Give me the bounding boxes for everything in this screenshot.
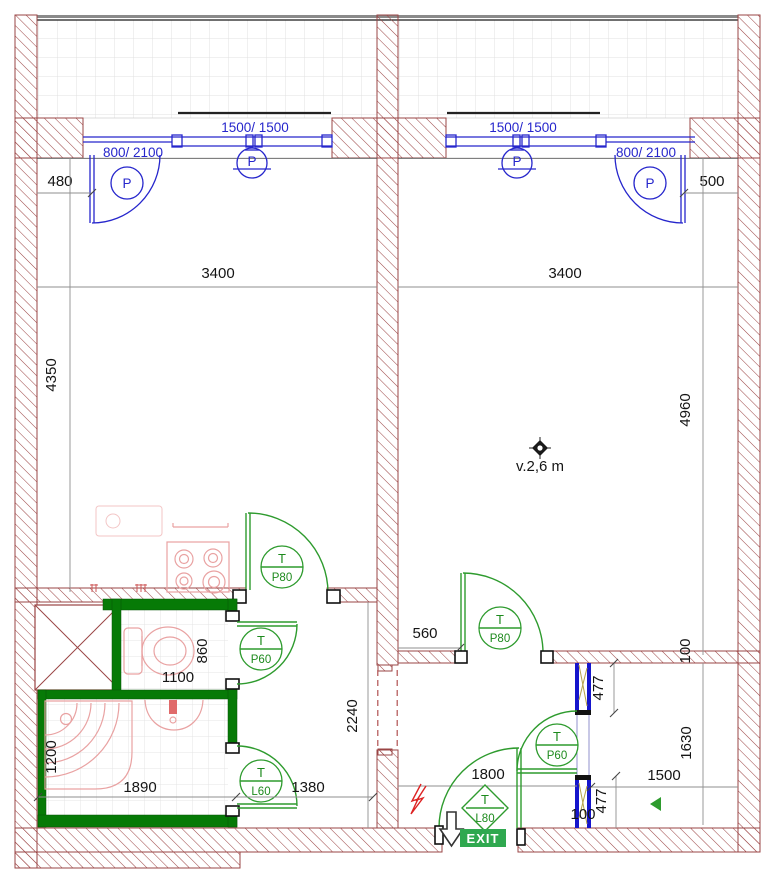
- kitchen-sink-drain: [106, 514, 120, 528]
- entrance-tag-letter: T: [481, 792, 489, 807]
- burner-2i: [209, 554, 218, 563]
- right-balcony: [398, 20, 738, 118]
- burner-3i: [180, 577, 188, 585]
- exit-direction-icon: [650, 797, 661, 811]
- dim-1380: 1380: [291, 779, 324, 796]
- kitchen-door-tag-letter: T: [278, 551, 286, 566]
- wc-door-jamb-top: [226, 611, 239, 621]
- burner-2: [204, 549, 222, 567]
- right-unit-openings: 1500/ 1500 800/ 2100 P P: [446, 113, 695, 223]
- kitchen-door-tag-code: P80: [272, 572, 292, 584]
- dim-480: 480: [47, 173, 72, 190]
- wc-door-tag-letter: T: [553, 729, 561, 744]
- left-window-tag: P: [247, 154, 256, 169]
- wardrobe-bottom-cap: [575, 775, 591, 780]
- opening-stub-top: [378, 665, 392, 671]
- bath-wall-right-b: [228, 687, 237, 745]
- wardrobe-top-cap: [575, 710, 591, 715]
- dim-4960: 4960: [677, 393, 694, 426]
- left-window-size-label: 1500/ 1500: [221, 120, 289, 135]
- bottom-wall-left-extra: [15, 852, 240, 868]
- dim-477-bottom: 477: [593, 788, 610, 813]
- balcony-divider-wall: [377, 15, 398, 118]
- bath-upper-tag-code: P60: [251, 654, 271, 666]
- dim-1500: 1500: [647, 767, 680, 784]
- dim-100-top: 100: [677, 638, 694, 663]
- left-door-size-label: 800/ 2100: [103, 145, 163, 160]
- right-door-tag: P: [645, 176, 654, 191]
- right-wall-pier: [690, 118, 760, 158]
- right-window-tag: P: [512, 154, 521, 169]
- shower-floor-tiles: [46, 699, 228, 815]
- dim-860: 860: [194, 638, 211, 663]
- dim-1890: 1890: [123, 779, 156, 796]
- dim-477-top: 477: [590, 675, 607, 700]
- height-mark-center: [537, 445, 542, 450]
- electric-bolt-icon: [411, 784, 426, 814]
- left-balcony: [37, 20, 377, 118]
- entrance-jamb-right: [517, 829, 525, 845]
- wardrobe-top-side-a: [575, 663, 579, 711]
- wc-door: T P60: [517, 711, 578, 773]
- bath-upper-tag-letter: T: [257, 633, 265, 648]
- kitchen-door-jamb-right: [327, 590, 340, 603]
- entrance-tag-code: L80: [475, 813, 494, 825]
- bath-wall-bottom: [38, 815, 237, 827]
- corridor-wall-lower: [377, 750, 398, 828]
- opening-stub-bottom: [378, 749, 392, 755]
- dim-2240: 2240: [344, 699, 361, 732]
- bath-wall-divider: [112, 599, 121, 693]
- hall-door: T P80 560: [398, 573, 553, 663]
- bath-lower-tag-letter: T: [257, 765, 265, 780]
- ceiling-note: v.2,6 m: [516, 458, 564, 475]
- right-balcony-tiles: [398, 20, 738, 118]
- hall-door-jamb-right: [541, 651, 553, 663]
- kitchen-door: T P80: [233, 513, 340, 603]
- bath-lower-tag-code: L60: [251, 786, 270, 798]
- dim-1800: 1800: [471, 766, 504, 783]
- dim-1630: 1630: [678, 726, 695, 759]
- burner-4i: [209, 577, 220, 588]
- hall-door-jamb-left: [455, 651, 467, 663]
- left-unit-openings: 1500/ 1500 800/ 2100 P P: [83, 113, 332, 223]
- shower-door-jamb-top: [226, 743, 239, 753]
- left-balcony-tiles: [37, 20, 377, 118]
- exit-sign-label: EXIT: [467, 831, 500, 846]
- bath-sink-faucet: [169, 700, 177, 714]
- right-unit-lower-wall-a: [398, 651, 457, 663]
- dim-560: 560: [412, 625, 437, 642]
- kitchen-fixtures: [90, 506, 229, 593]
- middle-partition-wall: [377, 118, 398, 665]
- floor-plan-drawing: 1500/ 1500 800/ 2100 P P 1500/ 1500 800/…: [0, 0, 776, 887]
- burner-3: [176, 573, 192, 589]
- bath-wall-middle: [38, 690, 237, 699]
- dim-100-bottom: 100: [570, 806, 595, 823]
- wc-door-tag-code: P60: [547, 750, 567, 762]
- dim-3400-right: 3400: [548, 265, 581, 282]
- dim-3400-left: 3400: [201, 265, 234, 282]
- right-door-size-label: 800/ 2100: [616, 145, 676, 160]
- right-window-size-label: 1500/ 1500: [489, 120, 557, 135]
- dim-1200: 1200: [43, 740, 60, 773]
- bathroom: T P60 T L60 1100 860 1200 1890 1380: [34, 599, 377, 827]
- burner-1: [175, 550, 193, 568]
- floor-plan-page: 1500/ 1500 800/ 2100 P P 1500/ 1500 800/…: [0, 0, 776, 887]
- ceiling-height-note: v.2,6 m: [516, 437, 564, 475]
- bath-wall-top: [103, 599, 237, 610]
- burner-1i: [180, 555, 189, 564]
- bottom-wall-a: [15, 828, 442, 852]
- left-wall-pier: [15, 118, 83, 158]
- hall-door-tag-letter: T: [496, 612, 504, 627]
- left-door-tag: P: [122, 176, 131, 191]
- hall-door-tag-code: P80: [490, 633, 510, 645]
- right-unit-lower-wall-b: [551, 651, 760, 663]
- dim-4350: 4350: [43, 358, 60, 391]
- dim-1100: 1100: [162, 669, 194, 686]
- bottom-wall-b: [518, 828, 760, 852]
